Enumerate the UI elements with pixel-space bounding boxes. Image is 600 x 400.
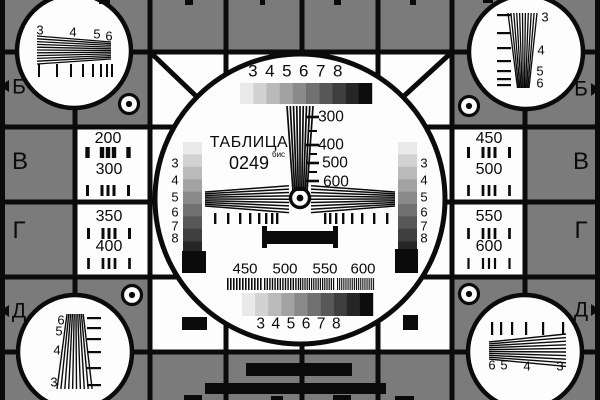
br-digit-3: 3 [556,360,563,373]
card-title: ТАБЛИЦА [210,135,288,151]
burst-label-550: 550 [312,262,337,277]
card-code-suffix: бис [272,151,285,159]
freq-600: 600 [476,239,503,255]
edge-letter-b-left: Б [12,77,26,98]
row-letter-g-left: Г [13,219,26,243]
card-code: 0249 [229,154,269,172]
right-scale-8: 8 [420,232,427,245]
bl-digit-3: 3 [50,376,57,389]
tv-test-card: 3 4 5 6 7 8 ТАБЛИЦА 0249 бис 300 400 500… [0,0,600,400]
burst-label-500: 500 [272,262,297,277]
left-scale-8: 8 [171,232,178,245]
row-letter-v-left: В [12,150,28,174]
bottom-scale-digits: 3 4 5 6 7 8 [256,316,341,332]
br-digit-6: 6 [488,359,495,372]
wedge-label-600: 600 [323,174,349,190]
left-scale-5: 5 [171,191,178,204]
left-scale-3: 3 [171,157,178,170]
top-scale-digits: 3 4 5 6 7 8 [248,63,344,80]
freq-350: 350 [96,209,123,225]
tr-digit-6: 6 [536,77,543,90]
freq-200: 200 [95,131,122,147]
wedge-label-500: 500 [322,155,348,171]
freq-400: 400 [96,239,123,255]
right-scale-6: 6 [420,206,427,219]
right-scale-4: 4 [420,174,427,187]
burst-label-450: 450 [232,262,257,277]
bl-digit-5: 5 [55,325,62,338]
freq-300: 300 [96,162,123,178]
burst-label-600: 600 [350,262,375,277]
wedge-label-300: 300 [318,109,344,125]
bl-digit-4: 4 [53,344,60,357]
edge-letter-d-right: Д [574,300,588,321]
freq-450: 450 [476,131,503,147]
wedge-label-400: 400 [318,137,344,153]
test-pattern-graphics [0,0,600,400]
left-scale-4: 4 [171,174,178,187]
right-scale-5: 5 [420,191,427,204]
row-letter-v-right: В [573,150,589,174]
tr-digit-4: 4 [537,44,544,57]
freq-500: 500 [476,162,503,178]
br-digit-5: 5 [500,359,507,372]
freq-550: 550 [476,209,503,225]
edge-letter-b-right: Б [574,79,588,100]
tl-digit-3: 3 [36,24,43,37]
row-letter-g-right: Г [575,219,588,243]
tr-digit-3: 3 [541,11,548,24]
left-scale-6: 6 [171,206,178,219]
black-bars [205,363,386,394]
tl-digit-5: 5 [93,28,100,41]
right-scale-3: 3 [420,157,427,170]
tl-digit-4: 4 [69,26,76,39]
edge-letter-d-left: Д [12,301,26,322]
br-digit-4: 4 [523,360,530,373]
tl-digit-6: 6 [105,30,112,43]
